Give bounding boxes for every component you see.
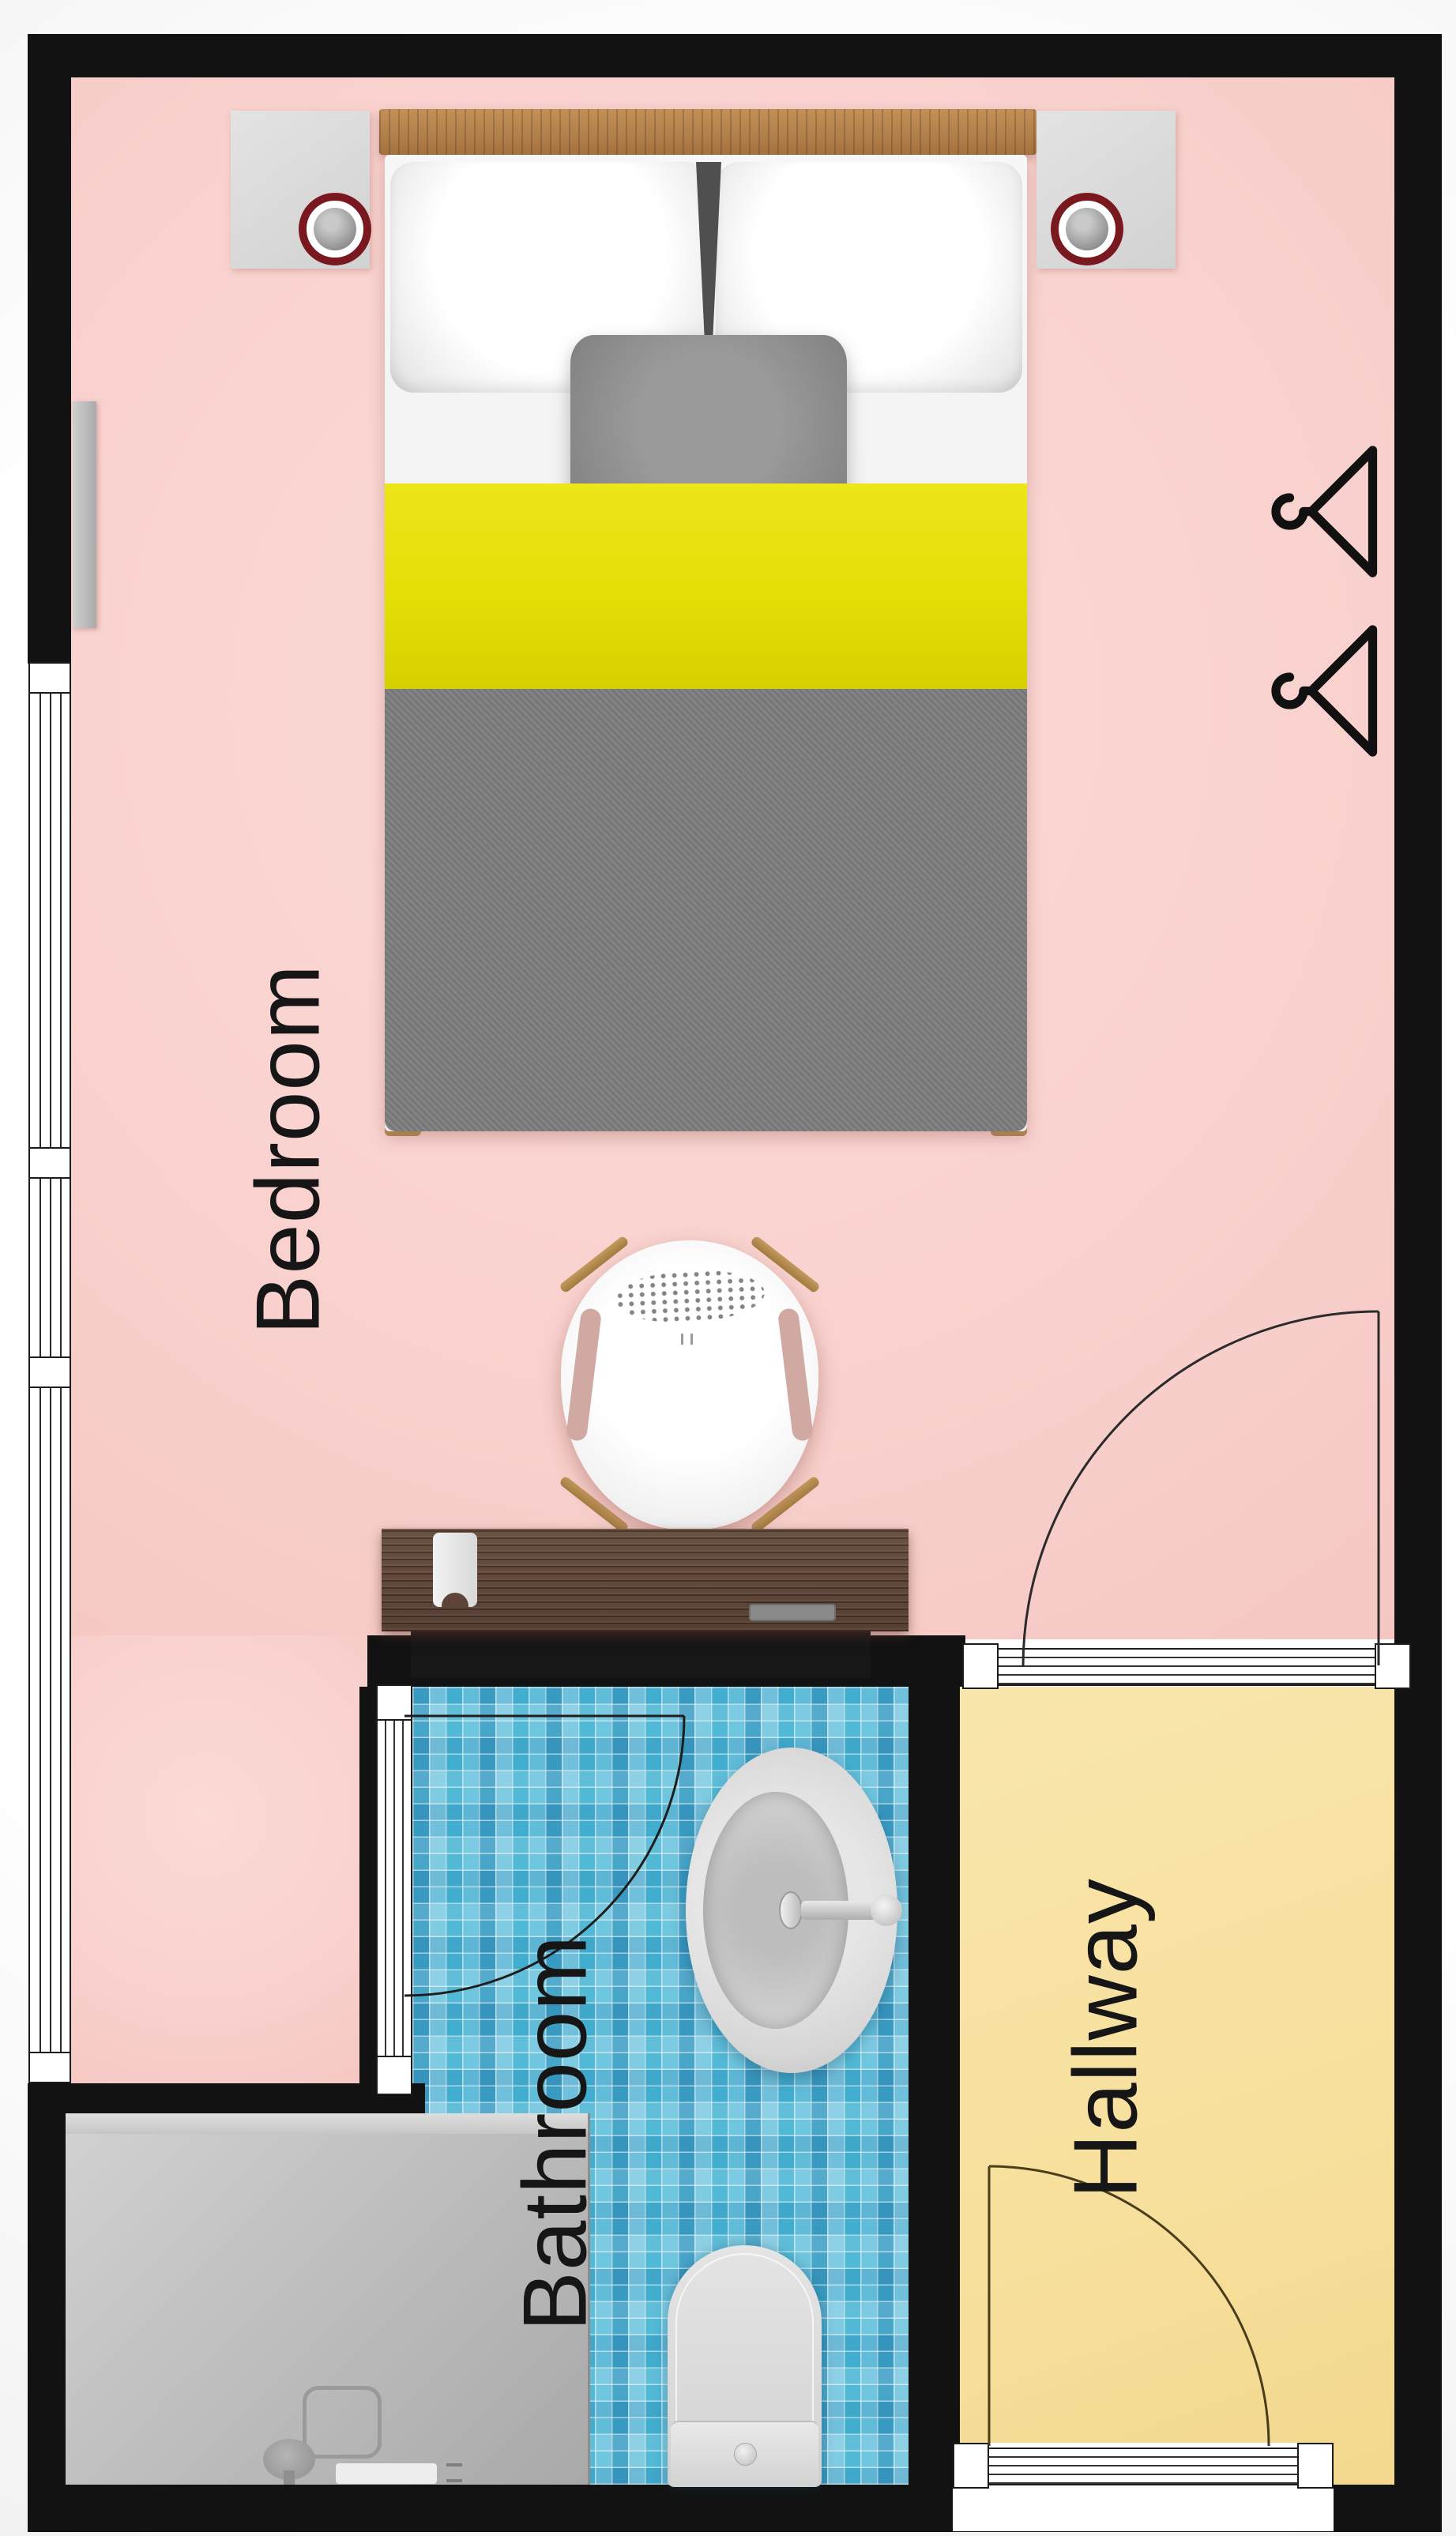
toilet[interactable]	[668, 2245, 822, 2487]
room-label-bedroom: Bedroom	[237, 964, 340, 1335]
wall-top	[28, 34, 1442, 77]
bathroom-door[interactable]	[376, 1684, 412, 2095]
room-area-hallway[interactable]	[960, 1687, 1394, 2485]
double-bed[interactable]	[385, 155, 1027, 1131]
bed-blanket	[385, 689, 1027, 1131]
sink-faucet-knob	[871, 1894, 902, 1926]
sink-faucet-handle[interactable]	[779, 1891, 803, 1929]
chair-stitch-mark	[681, 1334, 693, 1345]
bed-runner-yellow	[385, 483, 1027, 689]
lamp-right-core	[1066, 208, 1108, 250]
desk-handle[interactable]	[749, 1604, 836, 1621]
sink-faucet-spout	[801, 1901, 877, 1920]
entrance-door[interactable]	[988, 2448, 1299, 2485]
bathroom-door-block-bottom	[376, 2056, 412, 2095]
left-window-sill-bottom	[28, 2052, 71, 2083]
left-window-sill-top	[28, 662, 71, 694]
wall-bathroom-doorpost	[359, 1687, 376, 2098]
toilet-bowl-line	[675, 2253, 814, 2443]
wall-right	[1394, 34, 1442, 2532]
shower-glass-outline	[303, 2386, 382, 2459]
wall-left-upper	[28, 34, 71, 664]
clothes-hanger-bottom-icon[interactable]	[1268, 610, 1386, 772]
left-window-mullion-2	[28, 1356, 71, 1388]
bedroom-hallway-door[interactable]	[997, 1648, 1378, 1686]
entrance-door-block-left	[953, 2443, 989, 2489]
floor-plan-canvas: Bedroom Bathroom Hallway	[0, 0, 1456, 2536]
desk-notepad-notch	[442, 1593, 468, 1609]
room-area-bedroom-lower[interactable]	[71, 1635, 367, 2086]
chair[interactable]	[561, 1240, 818, 1530]
wall-bathroom-hallway	[909, 1635, 960, 2485]
clothes-hanger-top-icon[interactable]	[1268, 431, 1386, 593]
wall-left-lower	[28, 2083, 66, 2532]
bed-headboard[interactable]	[379, 109, 1037, 155]
room-label-bathroom: Bathroom	[504, 1935, 608, 2331]
shower-head-stem	[284, 2470, 295, 2485]
wall-shelf[interactable]	[73, 401, 96, 628]
shower-tray	[336, 2463, 437, 2484]
bedside-lamp-right[interactable]	[1051, 193, 1123, 265]
shower-dash-marks	[446, 2463, 462, 2482]
chair-arm-slot-left	[566, 1308, 602, 1442]
bedroom-hallway-door-block-left	[962, 1643, 999, 1689]
bedside-lamp-left[interactable]	[299, 193, 371, 265]
chair-arm-slot-right	[777, 1308, 814, 1442]
desk-notepad[interactable]	[433, 1533, 477, 1607]
desk[interactable]	[382, 1529, 909, 1631]
bedroom-hallway-door-block-right	[1375, 1643, 1411, 1689]
entrance-door-block-right	[1297, 2443, 1334, 2489]
lamp-left-core	[314, 208, 356, 250]
desk-lower-shelf	[411, 1629, 871, 1678]
bathroom-sink[interactable]	[686, 1748, 897, 2073]
chair-perforation	[613, 1266, 766, 1326]
bathroom-door-block-top	[376, 1684, 412, 1721]
left-window-mullion-1	[28, 1147, 71, 1179]
room-label-hallway: Hallway	[1055, 1878, 1158, 2199]
toilet-flush-button[interactable]	[734, 2443, 757, 2466]
